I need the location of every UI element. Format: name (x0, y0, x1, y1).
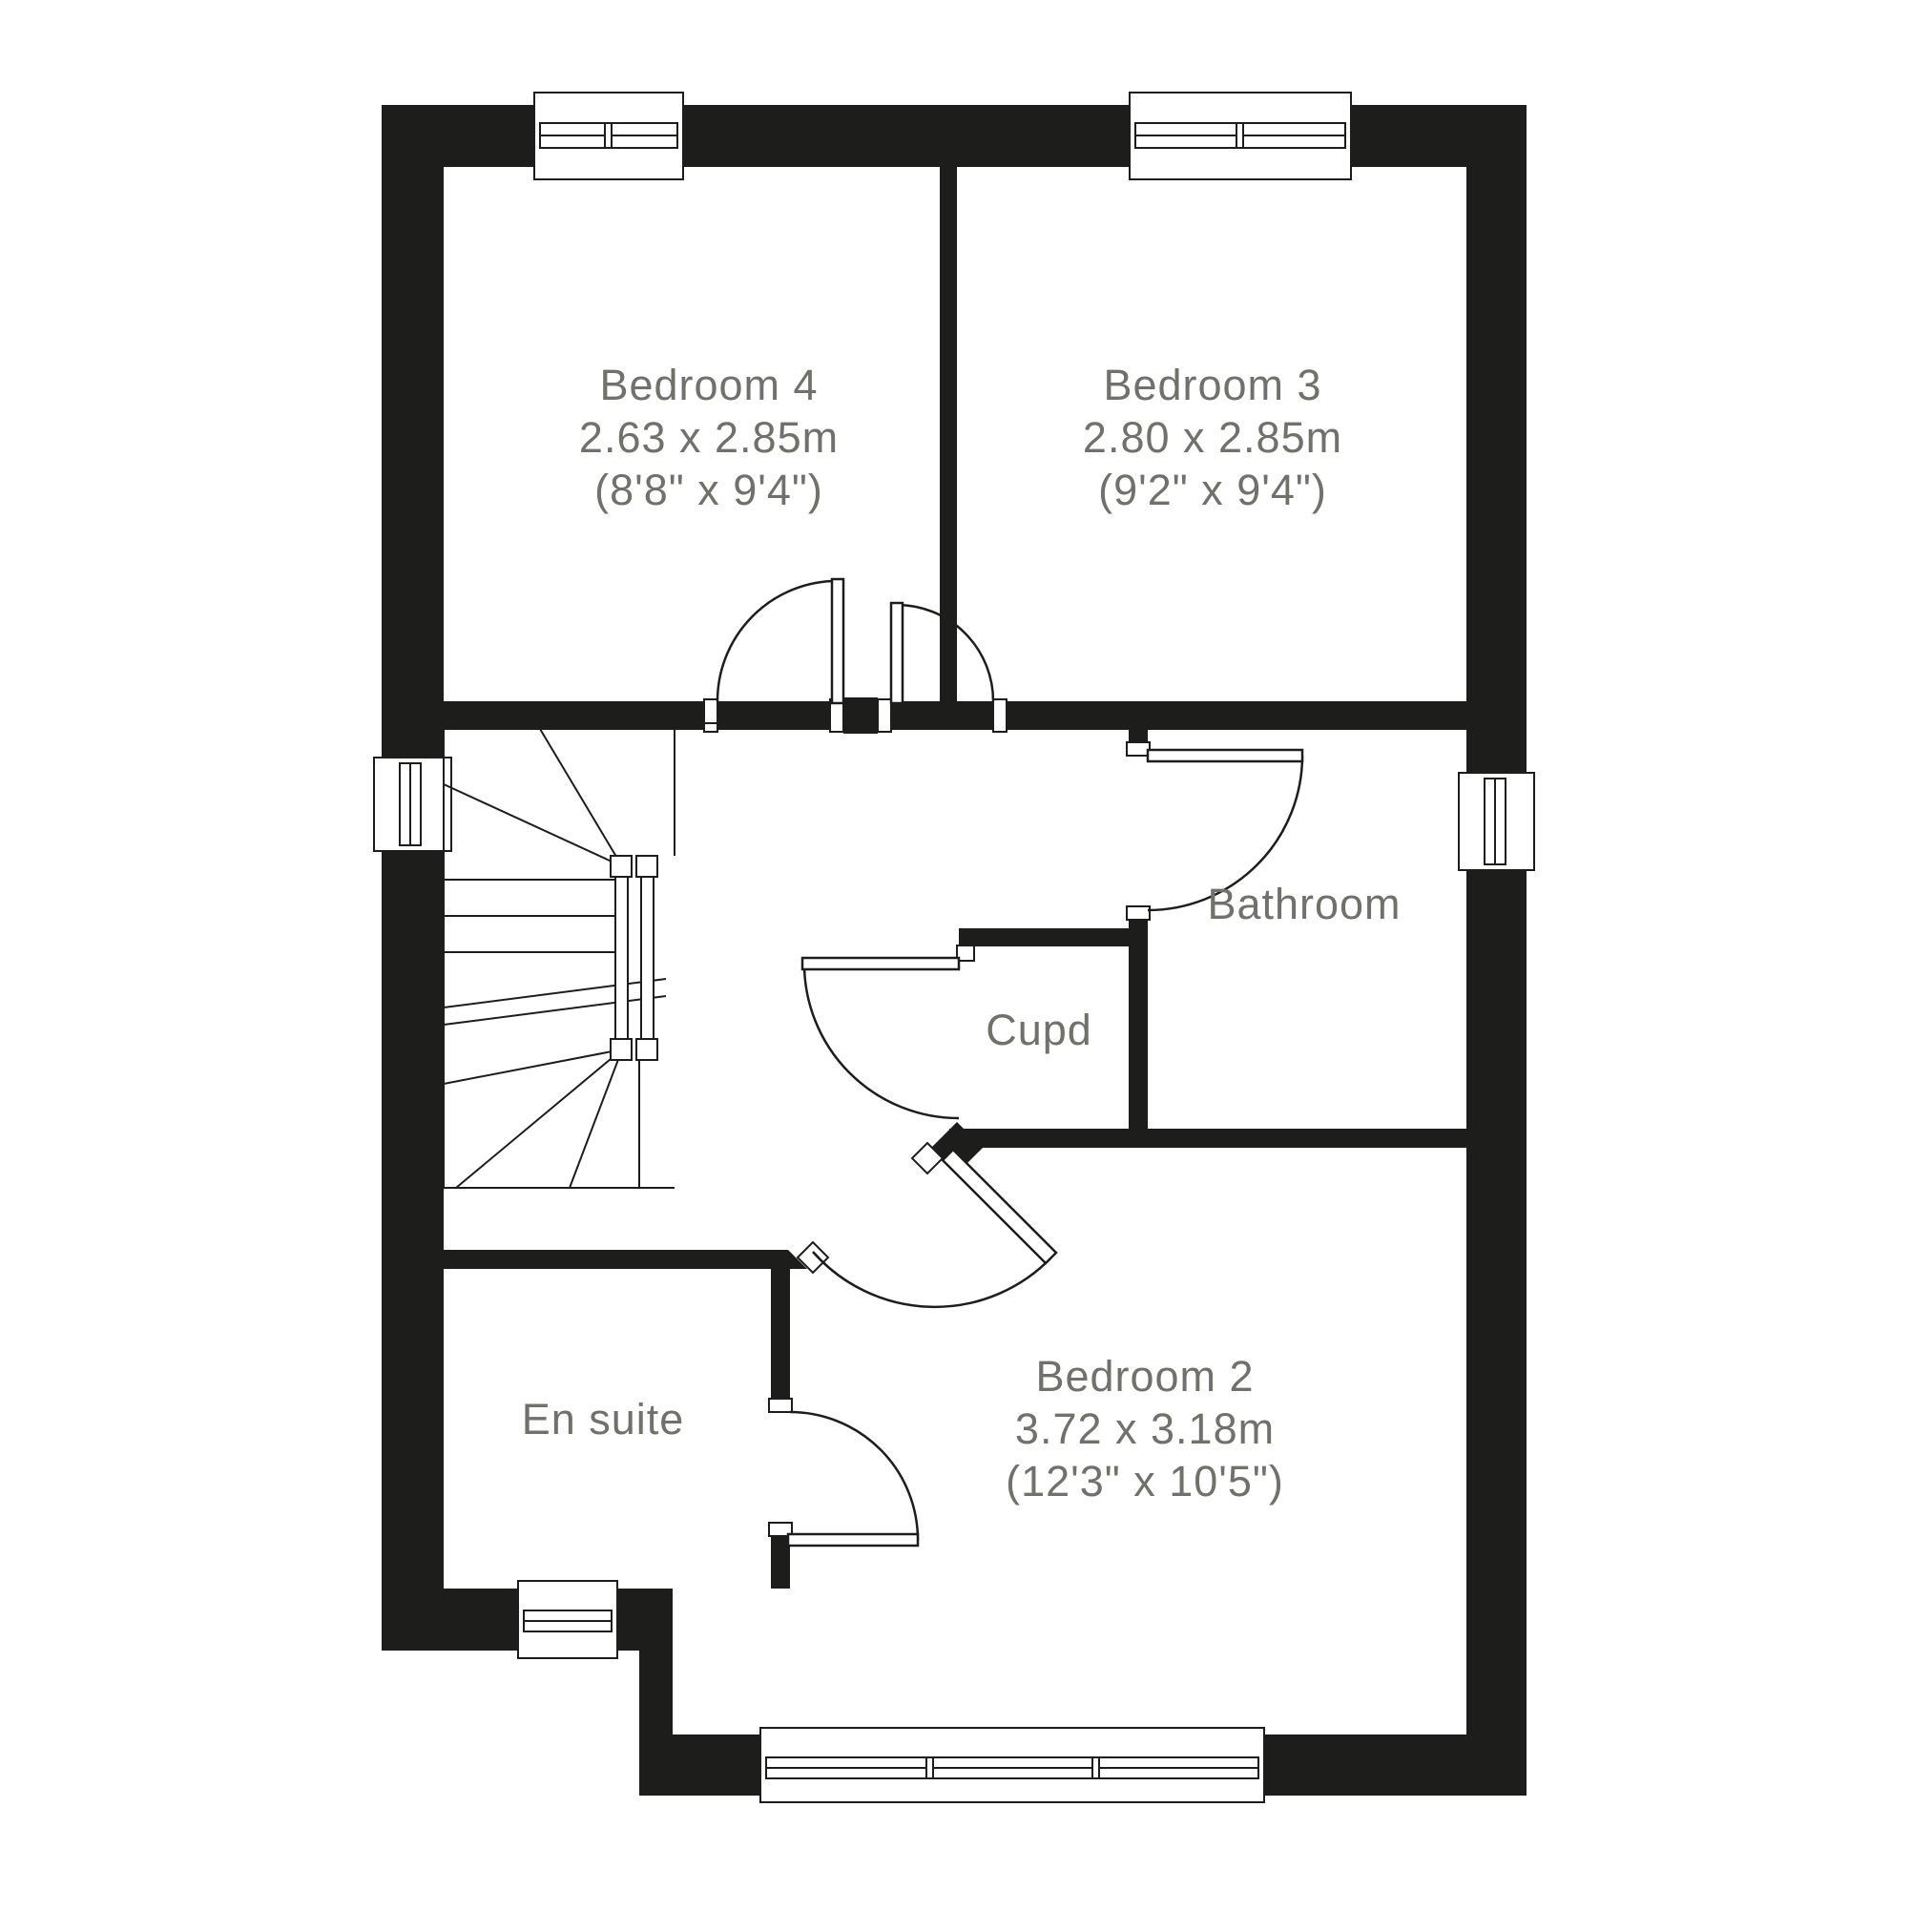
label-ensuite-name: En suite (522, 1395, 685, 1444)
wall-cupboard-right (1129, 906, 1148, 1148)
wall-bedroom2-top (949, 1129, 1466, 1148)
door-bedroom3-jamb-left (878, 699, 891, 732)
wall-exterior-right (1466, 105, 1527, 1796)
stair-handrail-diagonal (444, 979, 666, 1025)
window-landing (374, 758, 451, 851)
stair-newel-post-top-left (611, 856, 632, 877)
door-bedroom2 (798, 1143, 1056, 1307)
label-bedroom3-size-metric: 2.80 x 2.85m (1083, 413, 1342, 462)
window-bedroom3-mullion (1236, 123, 1243, 148)
label-bedroom3-size-imperial: (9'2" x 9'4") (1098, 466, 1327, 514)
wall-ensuite-right (771, 1269, 790, 1412)
door-cupboard-leaf (802, 958, 959, 969)
stair-outline (444, 723, 765, 1188)
window-bedroom2-mullion-1 (926, 1757, 933, 1778)
door-ensuite-leaf (788, 1534, 918, 1546)
door-cupboard (802, 945, 974, 1118)
window-ensuite (518, 1581, 617, 1658)
window-bedroom2-mullion-2 (1092, 1757, 1099, 1778)
door-ensuite-jamb-top (769, 1399, 792, 1412)
door-bedroom2-leaf (943, 1150, 1056, 1263)
floor-plan-canvas: Bedroom 4 2.63 x 2.85m (8'8" x 9'4") Bed… (0, 0, 1932, 1932)
stair-newel-post-bottom-right (636, 1039, 657, 1060)
door-bathroom-jamb-top (1127, 742, 1150, 756)
wall-ensuite-top (444, 1250, 807, 1269)
label-bedroom2-name: Bedroom 2 (1035, 1352, 1254, 1401)
label-bedroom4-name: Bedroom 4 (599, 361, 818, 409)
wall-hall-top (444, 701, 1466, 730)
window-bathroom (1459, 773, 1534, 870)
window-bedroom3 (1130, 93, 1351, 179)
door-bedroom4-jamb-left (704, 699, 717, 732)
door-ensuite (769, 1399, 918, 1546)
label-cupboard-name: Cupd (986, 1006, 1092, 1054)
door-cupboard-swing-arc (804, 964, 959, 1118)
wall-bedroom-door-stub (843, 697, 878, 734)
window-bedroom4-mullion (605, 123, 612, 148)
door-bathroom-leaf (1148, 750, 1302, 761)
stair-treads (444, 880, 615, 952)
door-bedroom3-jamb-right (993, 699, 1007, 732)
stair-rail-left (615, 870, 628, 1046)
label-bathroom-name: Bathroom (1207, 880, 1401, 928)
door-bedroom3-leaf (891, 603, 903, 703)
stair-winders-upper (444, 729, 622, 866)
floor-plan: Bedroom 4 2.63 x 2.85m (8'8" x 9'4") Bed… (0, 0, 1932, 1932)
window-bedroom2 (760, 1728, 1264, 1802)
wall-cupboard-top (959, 928, 1129, 946)
staircase (444, 723, 765, 1188)
label-bedroom2-size-imperial: (12'3" x 10'5") (1006, 1457, 1284, 1506)
door-bathroom-jamb-bottom (1127, 906, 1150, 920)
stair-winders-lower (444, 1049, 639, 1188)
label-bedroom3-name: Bedroom 3 (1103, 361, 1321, 409)
wall-exterior-left (382, 105, 444, 1651)
label-bedroom2-size-metric: 3.72 x 3.18m (1015, 1404, 1275, 1453)
stair-newel-post-top-right (636, 856, 657, 877)
door-ensuite-swing-arc (790, 1412, 918, 1540)
door-bedroom4-leaf (832, 579, 843, 703)
stair-rail-right (641, 870, 654, 1046)
label-bedroom4-size-metric: 2.63 x 2.85m (579, 413, 839, 462)
label-bedroom4-size-imperial: (8'8" x 9'4") (594, 466, 823, 514)
door-bedroom2-swing-arc (813, 1252, 1051, 1307)
wall-exterior-step-connector (639, 1589, 673, 1735)
door-bedroom4-swing-arc (717, 581, 832, 701)
stair-newel-post-bottom-left (611, 1039, 632, 1060)
window-bedroom4 (534, 93, 683, 179)
